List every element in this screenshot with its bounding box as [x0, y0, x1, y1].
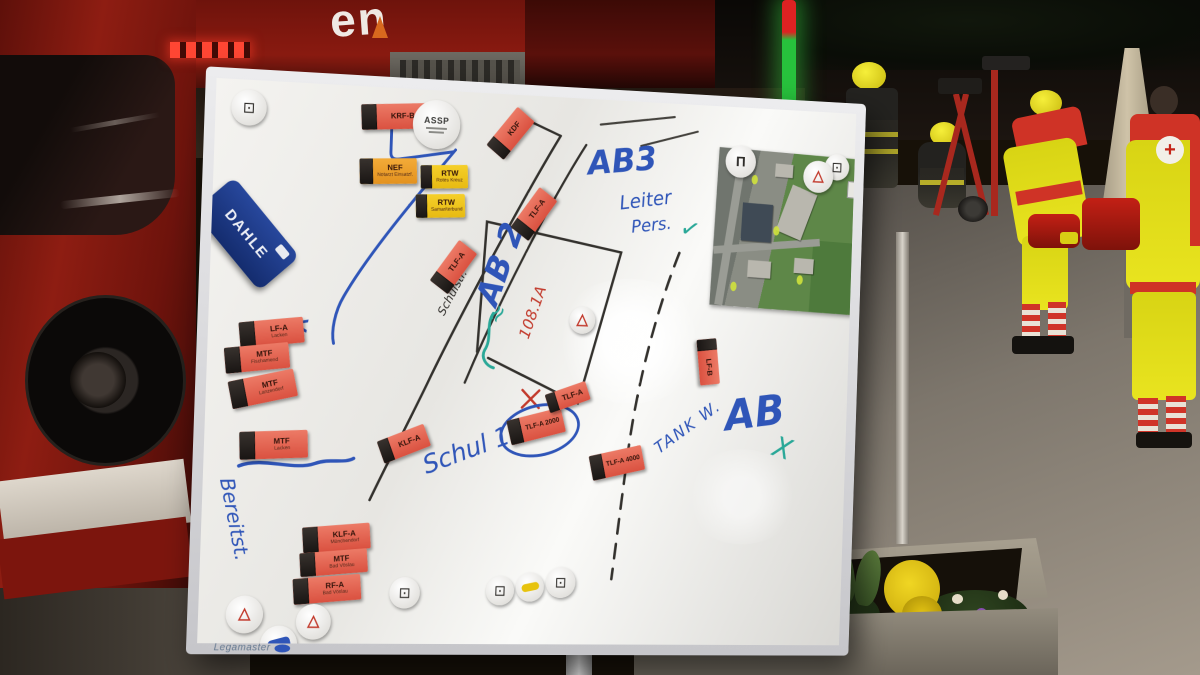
map-field: [808, 240, 856, 316]
magnet-tab: [359, 158, 373, 184]
medic-striped-sock: [1048, 302, 1066, 336]
tactical-square-icon: ⊡: [555, 575, 567, 590]
tactical-square-icon: ⊡: [494, 583, 506, 598]
floodlight-tripod-pole: [991, 64, 998, 216]
magnet-tab: [361, 104, 378, 130]
medic-striped-cuff: [1166, 396, 1186, 434]
red-cross-patch: +: [1156, 136, 1184, 164]
map-label-box: [847, 181, 856, 200]
magnet-lf-b-vertical: LF-B: [696, 338, 719, 385]
medic-boots: [1012, 336, 1074, 354]
medic-head: [1150, 86, 1178, 116]
fine-print-line: [426, 127, 447, 130]
white-pansy: [998, 590, 1008, 600]
medic-striped-cuff: [1138, 398, 1158, 436]
map-highlight: [751, 175, 758, 185]
annotation-pers: Pers.: [631, 215, 673, 236]
yellow-equipment: [1060, 232, 1078, 244]
warning-triangle-icon: △: [813, 169, 824, 185]
medic-sleeve-edge: [1190, 128, 1200, 246]
whiteboard-surface: AB3 Leiter Pers. ✓ AB 2 Schulstr. 108.1A…: [197, 78, 856, 645]
magnet-tab: [302, 527, 319, 554]
yellow-dash-icon: [521, 582, 539, 593]
map-highlight: [773, 226, 780, 236]
magnet-tab: [239, 431, 256, 459]
board-frame-brand: Legamaster: [214, 642, 291, 653]
eraser-label: [275, 244, 290, 260]
red-cross-icon: +: [1164, 139, 1176, 162]
medic-striped-sock: [1022, 304, 1040, 338]
map-building: [747, 260, 771, 279]
warning-triangle-icon: △: [307, 614, 319, 630]
eraser-brand-text: DAHLE: [222, 206, 272, 262]
tactical-square-icon: ⊡: [831, 160, 842, 175]
truck-wheel-hub: [70, 352, 126, 408]
magnet-tab: [299, 552, 316, 577]
tactical-square-icon: ⊡: [398, 585, 410, 600]
photo-scene: en +: [0, 0, 1200, 675]
legamaster-logo-mark: [274, 644, 290, 652]
magnet-tab: [292, 578, 309, 605]
gate-symbol-icon: Π: [736, 154, 746, 169]
warning-triangle-icon: △: [238, 606, 251, 622]
magnet-rtw-1: RTWRotes Kreuz: [420, 165, 468, 189]
magnet-tab: [416, 194, 428, 218]
firefighter-helmet: [852, 62, 886, 90]
truck-light-strip: [170, 42, 250, 58]
map-building: [776, 185, 818, 241]
medic-legs: [1132, 292, 1196, 400]
annotation-leiter: Leiter: [618, 187, 672, 212]
warning-triangle-icon: △: [576, 312, 588, 328]
annotation-ab3: AB3: [586, 142, 658, 180]
magnet-tab: [420, 165, 432, 189]
map-building: [741, 202, 774, 242]
floodlight-head: [938, 78, 982, 94]
legamaster-logo-text: Legamaster: [214, 642, 271, 653]
truck-windshield: [0, 55, 175, 235]
medic-boots: [1136, 432, 1192, 448]
fire-truck-background: [525, 0, 715, 90]
map-highlight: [796, 275, 803, 285]
board-stand-pole: [896, 232, 909, 544]
map-highlight: [730, 281, 737, 291]
fine-print-line: [429, 131, 444, 134]
white-pansy: [952, 594, 963, 604]
magnet-nef: NEFNotarzt Einsatzf.: [359, 158, 417, 184]
traffic-cone: [372, 16, 388, 38]
camera-tripod-head: [982, 56, 1030, 70]
round-magnet-warning: △: [295, 604, 331, 640]
map-building: [775, 163, 794, 178]
map-building: [794, 258, 814, 275]
annotation-ab: AB: [723, 389, 787, 438]
magnet-rtw-2: RTWSamariterbund: [416, 194, 466, 218]
cable-reel: [958, 196, 988, 222]
magnet-mtf-3: MTFLacken: [239, 430, 308, 460]
whiteboard: AB3 Leiter Pers. ✓ AB 2 Schulstr. 108.1A…: [186, 66, 866, 655]
tactical-square-icon: ⊡: [243, 100, 256, 116]
rescue-bag: [1082, 198, 1140, 250]
